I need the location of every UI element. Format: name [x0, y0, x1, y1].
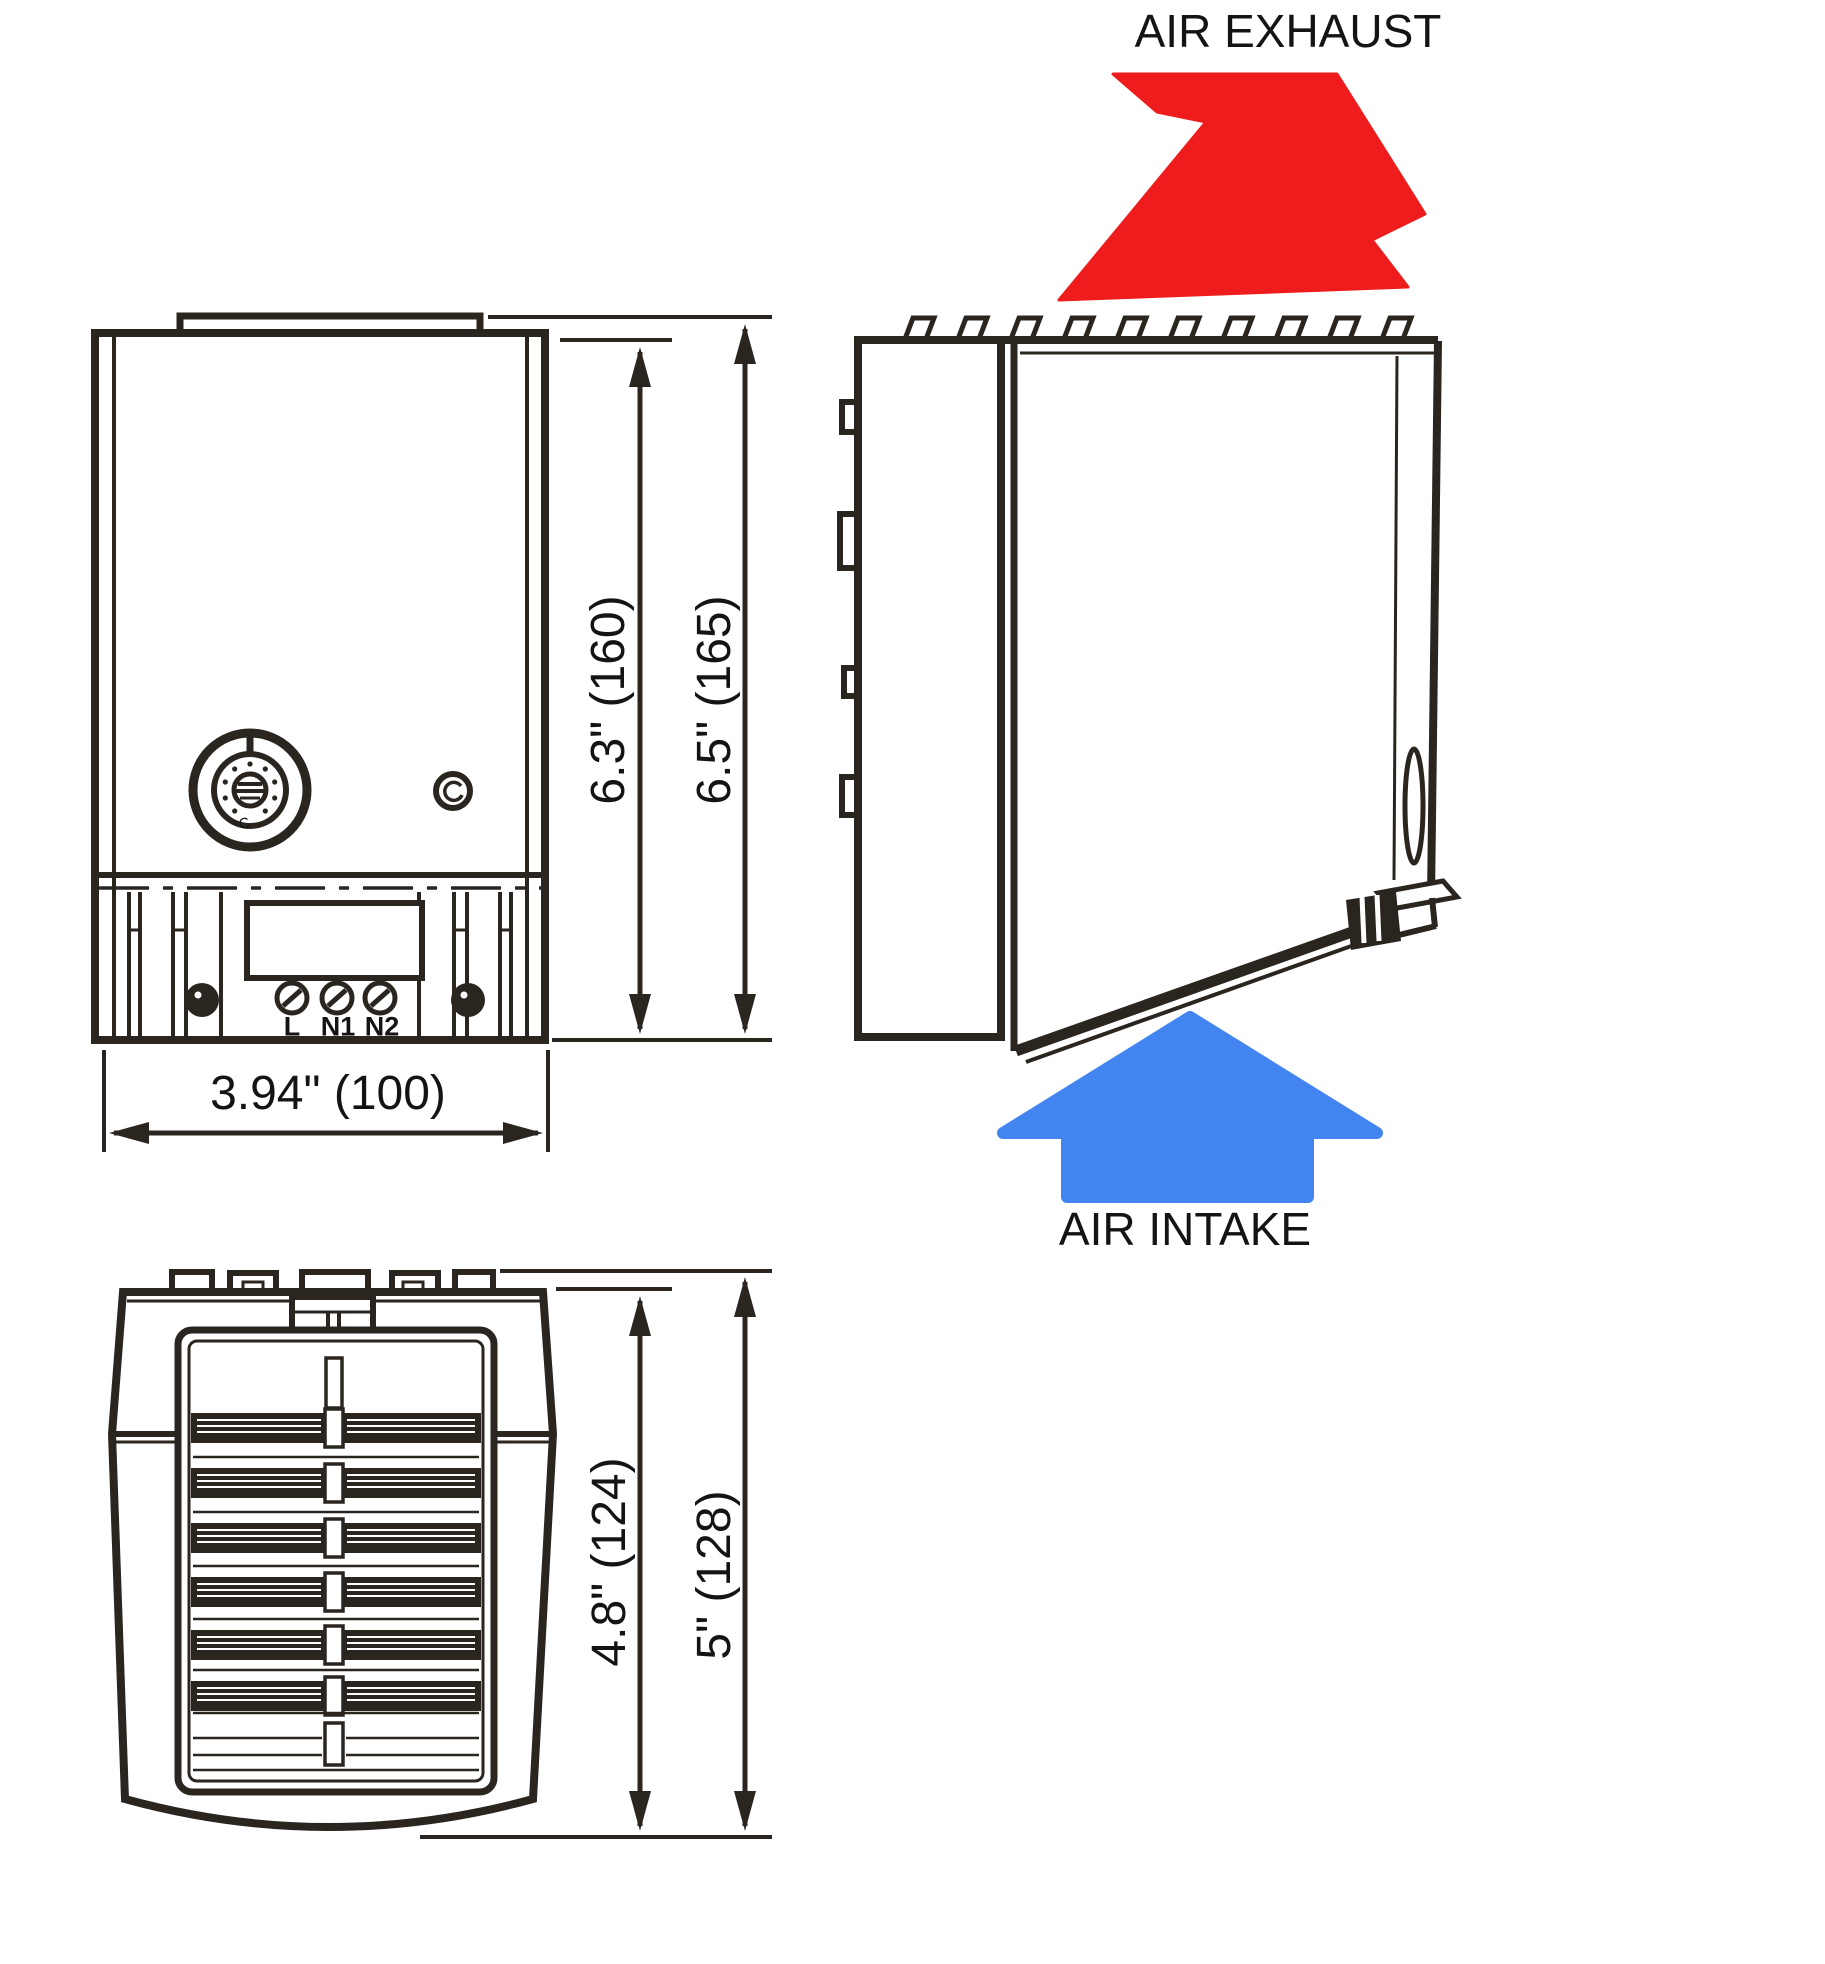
mounting-screw-right[interactable] [451, 983, 485, 1017]
front-width-dimension: 3.94" (100) [104, 1050, 548, 1152]
foot-slot [1362, 897, 1364, 943]
arrowhead-down [629, 994, 651, 1034]
vent-slot [905, 318, 934, 339]
side-front-edge [1431, 341, 1438, 898]
vent-slot [1223, 318, 1252, 339]
screw-highlight [195, 992, 202, 999]
arrowhead-left [109, 1122, 149, 1144]
side-view [840, 318, 1457, 1062]
foot-block [1346, 892, 1401, 950]
dial-tick [272, 779, 277, 784]
vent-slot [1329, 318, 1358, 339]
top-view [112, 1272, 553, 1827]
louver-center-slot [325, 1677, 343, 1715]
dim-depth-overall: 5" (128) [688, 1490, 741, 1659]
screw-highlight [461, 992, 468, 999]
vent-slot [1276, 318, 1305, 339]
grille-top-slot [326, 1358, 342, 1408]
dim-depth-body: 4.8" (124) [583, 1457, 636, 1666]
indicator-outline [436, 774, 470, 808]
foot-edge [1399, 926, 1436, 935]
side-front-inner-line [1394, 356, 1397, 880]
dial-tick [247, 761, 252, 766]
dial-tick [223, 795, 228, 800]
louver-center-slot [325, 1519, 343, 1557]
mounting-screw-left[interactable] [185, 983, 219, 1017]
vent-slot [1170, 318, 1199, 339]
terminal-label-n2: N2 [365, 1011, 400, 1041]
louver-center-slot [325, 1464, 343, 1502]
air-intake-label: AIR INTAKE [1059, 1203, 1311, 1255]
thermostat-dial: °C [193, 733, 307, 847]
arrowhead-right [503, 1122, 543, 1144]
louver-center-slot [325, 1626, 343, 1664]
dim-height-body: 6.3" (160) [582, 595, 635, 804]
arrowhead-up [629, 1296, 651, 1336]
air-exhaust-label: AIR EXHAUST [1135, 5, 1442, 57]
intake-arrow-group [1003, 1017, 1377, 1197]
indicator-lamp [436, 774, 470, 808]
grille-bottom-slot [325, 1723, 343, 1765]
air-exhaust-arrow-icon [1059, 74, 1425, 300]
terminal-window [247, 903, 422, 978]
exhaust-arrow-group [1059, 74, 1425, 300]
vent-slot [1117, 318, 1146, 339]
vent-slot [958, 318, 987, 339]
louver-center-slot [325, 1409, 343, 1447]
dim-height-overall: 6.5" (165) [688, 595, 741, 804]
dim-width-overall: 3.94" (100) [210, 1067, 446, 1120]
arrowhead-down [629, 1791, 651, 1831]
foot-edge [1432, 898, 1435, 927]
arrowhead-up [734, 324, 756, 364]
drawing-svg: °C [0, 0, 1825, 1964]
top-vent-slots [905, 318, 1411, 339]
vent-slot [1011, 318, 1040, 339]
vent-slot [1382, 318, 1411, 339]
dial-tick [223, 779, 228, 784]
dial-tick [263, 766, 268, 771]
foot-slot [1377, 895, 1379, 941]
air-intake-arrow-icon [1003, 1017, 1377, 1197]
arrowhead-up [734, 1277, 756, 1317]
front-view: °C [95, 316, 545, 1041]
dial-tick [232, 808, 237, 813]
arrowhead-up [629, 347, 651, 387]
arrowhead-down [734, 1791, 756, 1831]
louver-center-slot [325, 1573, 343, 1611]
vent-slot [1064, 318, 1093, 339]
side-slot-oval [1405, 749, 1423, 863]
terminal-label-l: L [284, 1011, 301, 1041]
dimension-drawing: °C [0, 0, 1825, 1964]
dial-tick [232, 766, 237, 771]
arrowhead-down [734, 994, 756, 1034]
side-back-panel [858, 340, 1001, 1037]
dial-tick [272, 795, 277, 800]
terminal-label-n1: N1 [321, 1011, 356, 1041]
dial-tick [263, 808, 268, 813]
